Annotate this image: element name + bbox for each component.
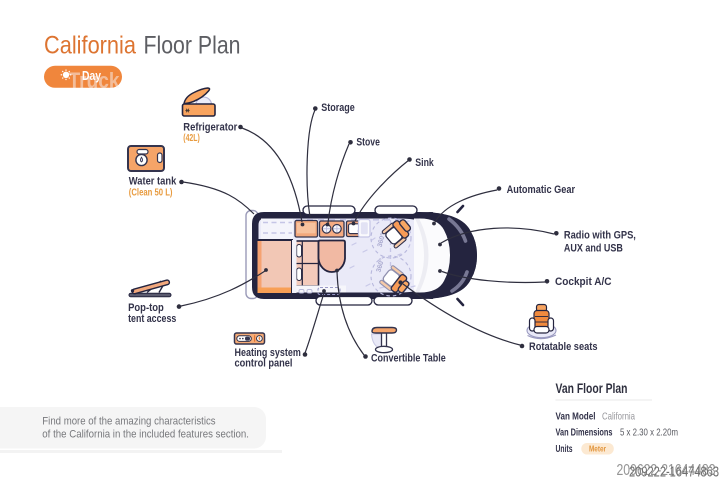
svg-text:Van Floor Plan: Van Floor Plan — [556, 381, 628, 396]
svg-text:Stove: Stove — [356, 136, 380, 148]
svg-text:Refrigerator: Refrigerator — [183, 122, 238, 134]
svg-text:Automatic Gear: Automatic Gear — [507, 184, 576, 196]
svg-text:Floor Plan: Floor Plan — [144, 32, 241, 60]
svg-text:California: California — [602, 410, 635, 422]
svg-text:of the California in the inclu: of the California in the included featur… — [42, 428, 249, 440]
svg-text:(Clean 50 L): (Clean 50 L) — [129, 187, 173, 198]
svg-text:Van Dimensions: Van Dimensions — [556, 427, 613, 439]
svg-text:Meter: Meter — [589, 443, 607, 453]
svg-text:tent access: tent access — [128, 313, 176, 325]
svg-text:Rotatable seats: Rotatable seats — [529, 341, 598, 353]
svg-text:5 x 2.30 x 2.20m: 5 x 2.30 x 2.20m — [620, 427, 678, 439]
svg-text:control panel: control panel — [235, 358, 293, 370]
svg-text:Storage: Storage — [321, 102, 355, 114]
svg-text:(42L): (42L) — [183, 133, 200, 144]
svg-text:Radio with GPS,: Radio with GPS, — [564, 229, 636, 241]
svg-text:209222-16474863: 209222-16474863 — [629, 465, 719, 481]
svg-text:Convertible Table: Convertible Table — [371, 353, 446, 365]
svg-text:AUX and USB: AUX and USB — [564, 242, 623, 254]
svg-text:Day: Day — [82, 69, 101, 83]
svg-text:Cockpit A/C: Cockpit A/C — [555, 276, 612, 288]
svg-text:California: California — [44, 32, 136, 60]
svg-text:Water tank: Water tank — [129, 175, 177, 187]
svg-text:Find more of the amazing chara: Find more of the amazing characteristics — [42, 415, 216, 427]
svg-text:Units: Units — [556, 443, 573, 455]
svg-text:Sink: Sink — [415, 157, 434, 169]
svg-text:Van Model: Van Model — [556, 410, 596, 422]
